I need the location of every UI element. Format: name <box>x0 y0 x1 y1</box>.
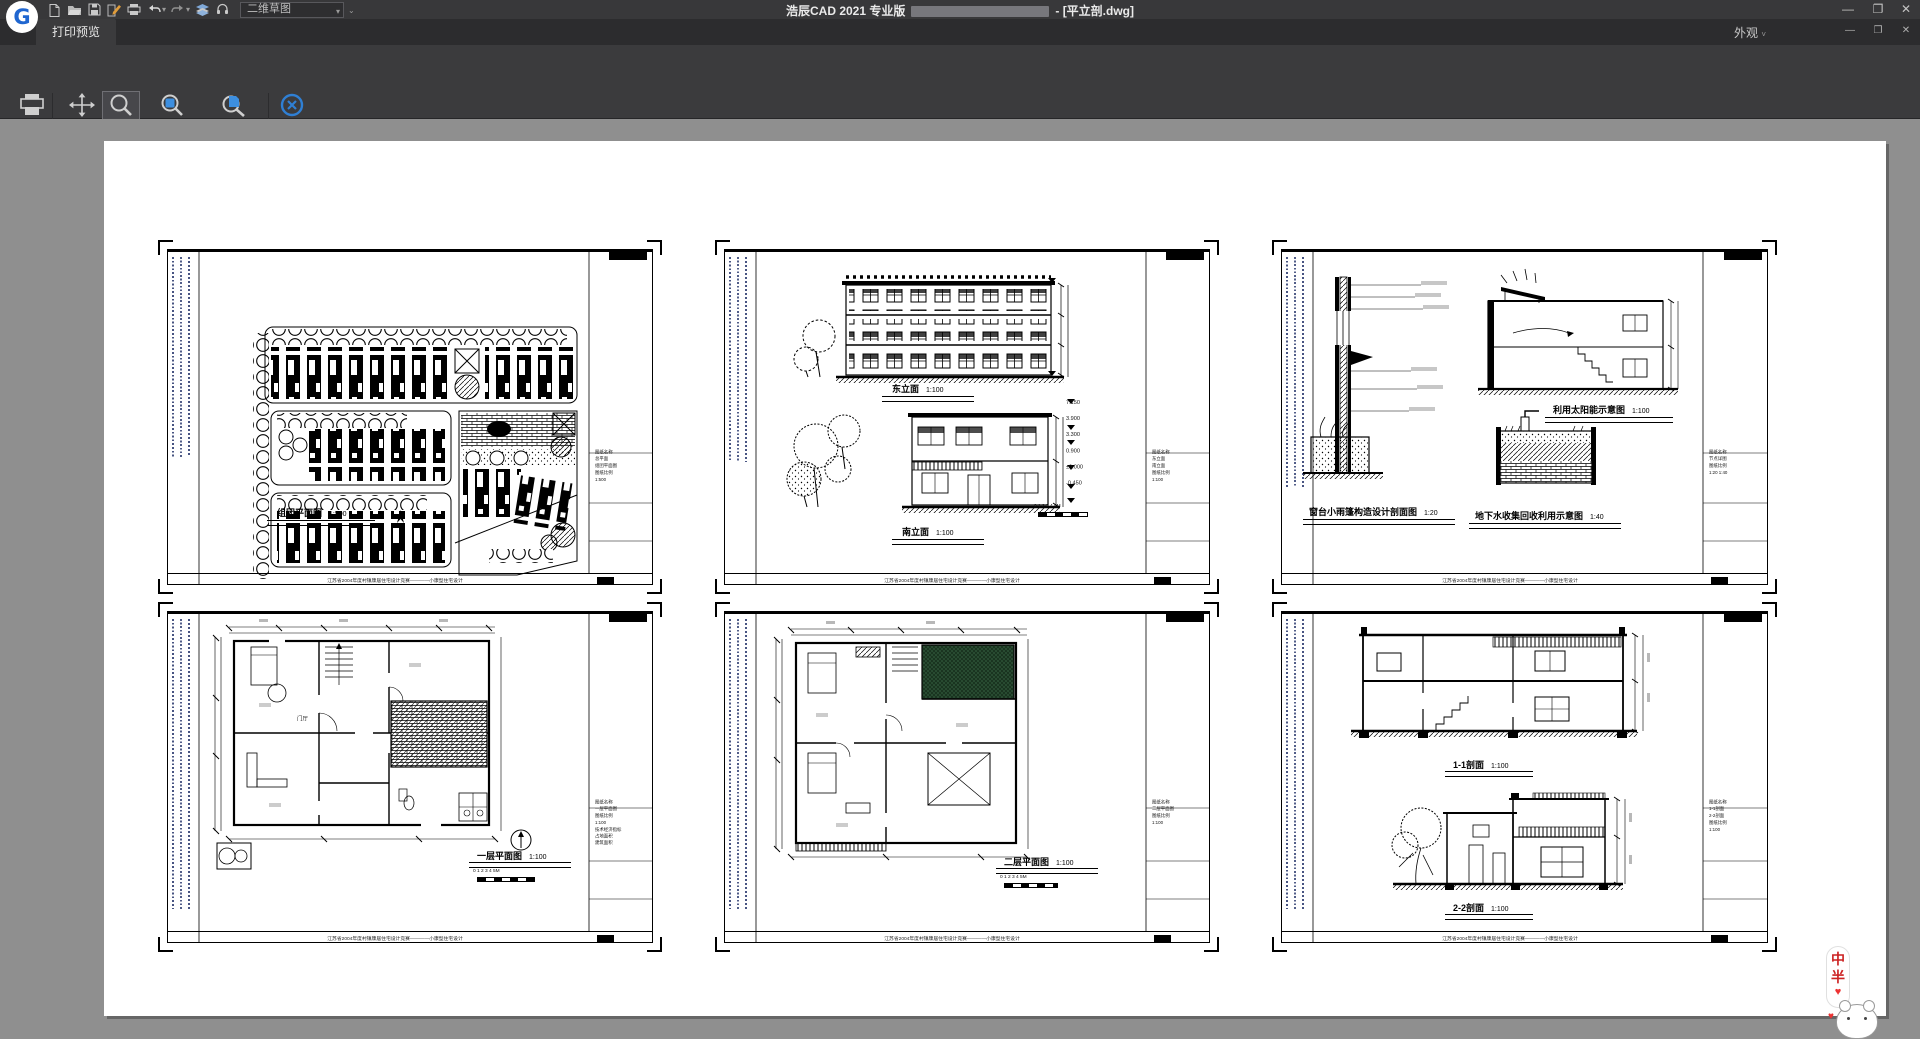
sheet-sections: 1-1剖面1:100 2-2剖面1:100 图纸名称 1-1剖面 2-2剖面 图… <box>1273 603 1776 951</box>
sheet-titleblock: 图纸名称 二层平面图 图纸比例 1:100 <box>1152 799 1207 826</box>
restore-button[interactable]: ❐ <box>1864 0 1892 18</box>
app-logo-icon[interactable]: G <box>6 1 38 33</box>
appearance-menu[interactable]: 外观 ˅ <box>1734 24 1766 41</box>
details-drawing <box>1273 241 1776 593</box>
sheet-footer: 江苏省2004年度村镇康居住宅设计竞赛————小康型住宅设计 <box>724 573 1210 593</box>
sheet-titleblock: 图纸名称 1-1剖面 2-2剖面 图纸比例 1:100 <box>1709 799 1764 833</box>
bear-icon: ♥ <box>1836 1004 1878 1039</box>
sheet-footer: 江苏省2004年度村镇康居住宅设计竞赛————小康型住宅设计 <box>167 931 653 951</box>
sheet-titleblock: 图纸名称 东立面 南立面 图纸比例 1:100 <box>1152 449 1207 483</box>
doc-close-button[interactable]: ✕ <box>1894 23 1918 41</box>
pan-icon <box>69 93 95 117</box>
sheet-details: 利用太阳能示意图1:100 窗台小雨篷构造设计剖面图1:20 地下水收集回收利用… <box>1273 241 1776 593</box>
sheet-footer: 江苏省2004年度村镇康居住宅设计竞赛————小康型住宅设计 <box>724 931 1210 951</box>
scalebar <box>477 877 535 882</box>
printer-icon <box>19 93 45 117</box>
sheet-titleblock: 图纸名称 一层平面图 图纸比例 1:100 技术经济指标 占地面积 建筑面积 <box>595 799 650 847</box>
caption-solar-diagram: 利用太阳能示意图1:100 <box>1553 403 1650 416</box>
titlebar: G ▾ ▾ 二维草图▾ ⌄ 浩辰CAD 2021 专业版- [平立剖.dwg] … <box>0 0 1920 19</box>
footer-stamp <box>1711 935 1728 943</box>
tab-print-preview[interactable]: 打印预览 <box>36 19 116 45</box>
window-zoom-icon <box>159 93 185 117</box>
caption-underline <box>1445 914 1533 920</box>
room-label: 门厅 <box>297 715 308 722</box>
doc-restore-button[interactable]: ❐ <box>1866 23 1890 41</box>
window-title: 浩辰CAD 2021 专业版- [平立剖.dwg] <box>0 2 1920 19</box>
cad-print-preview-window: { "titlebar": { "app_title": "浩辰CAD 2021… <box>0 0 1920 1037</box>
mascot-bubble: 中 半 ♥ <box>1826 946 1850 1008</box>
footer-stamp <box>1154 935 1171 943</box>
floor-plan-2-drawing <box>716 603 1218 951</box>
print-preview-ribbon: 打印 平移 缩放 窗口缩放 满屏缩放 关闭 打印 缩放 <box>0 45 1920 119</box>
chevron-down-icon: ˅ <box>1761 30 1766 39</box>
caption-underline <box>1303 519 1455 525</box>
caption-underline <box>267 520 375 526</box>
sheet-footer: 江苏省2004年度村镇康居住宅设计竞赛————小康型住宅设计 <box>1281 573 1768 593</box>
sections-drawing <box>1273 603 1776 951</box>
caption-groundwater-detail: 地下水收集回收利用示意图1:40 <box>1475 509 1604 522</box>
doc-minimize-button[interactable]: — <box>1838 23 1862 41</box>
footer-stamp <box>597 577 614 585</box>
sheet-site-plan: 组团平面图1:500 图纸名称 总平面 组团平面图 图纸比例 1:500 江苏省… <box>159 241 661 593</box>
scalebar <box>1038 512 1088 517</box>
zoom-icon <box>108 93 134 117</box>
site-plan-drawing <box>159 241 661 593</box>
footer-stamp <box>1154 577 1171 585</box>
scalebar-label: 0 1 2 3 4 5M <box>473 868 500 873</box>
scalebar <box>1004 883 1058 888</box>
scalebar-label: 0 1 2 3 4 5M <box>1034 503 1061 508</box>
sheet-footer: 江苏省2004年度村镇康居住宅设计竞赛————小康型住宅设计 <box>1281 931 1768 951</box>
caption-floor-plan-2: 二层平面图1:100 <box>1004 855 1074 868</box>
sheet-titleblock: 图纸名称 节点详图 图纸比例 1:20 1:40 <box>1709 449 1764 476</box>
caption-underline <box>996 868 1098 874</box>
sheet-floor-plan-2: 二层平面图1:100 0 1 2 3 4 5M 图纸名称 二层平面图 图纸比例 … <box>716 603 1218 951</box>
sheet-elevations: 东立面1:100 南立面1:100 7.150 3.900 3.300 0.90… <box>716 241 1218 593</box>
caption-underline <box>469 862 571 868</box>
sheet-footer: 江苏省2004年度村镇康居住宅设计竞赛————小康型住宅设计 <box>167 573 653 593</box>
caption-east-elevation: 东立面1:100 <box>892 382 944 395</box>
caption-underline <box>892 539 984 545</box>
caption-section-1-1: 1-1剖面1:100 <box>1453 758 1509 771</box>
scalebar-label: 0 1 2 3 4 5M <box>1000 874 1027 879</box>
fullscreen-zoom-icon <box>221 93 247 117</box>
minimize-button[interactable]: — <box>1834 0 1862 18</box>
caption-floor-plan-1: 一层平面图1:100 <box>477 849 547 862</box>
caption-underline <box>882 396 974 402</box>
caption-underline <box>1469 523 1621 529</box>
close-circle-icon <box>279 93 305 117</box>
caption-underline <box>1445 771 1533 777</box>
elevation-levels: 7.150 3.900 3.300 0.900 ±0.000 -0.450 <box>1066 394 1083 491</box>
redacted-text <box>911 6 1049 17</box>
caption-south-elevation: 南立面1:100 <box>902 525 954 538</box>
mascot-sticker: 中 半 ♥ ♥ <box>1824 946 1894 1037</box>
sheet-titleblock: 图纸名称 总平面 组团平面图 图纸比例 1:500 <box>595 449 650 483</box>
caption-sill-canopy-detail: 窗台小雨篷构造设计剖面图1:20 <box>1309 505 1438 518</box>
caption-underline <box>1545 417 1673 423</box>
caption-site-plan: 组团平面图1:500 <box>277 506 347 519</box>
floor-plan-1-drawing <box>159 603 661 951</box>
sheet-floor-plan-1: 门厅 一层平面图1:100 0 1 2 3 4 5M 图纸名称 一层平面图 图纸… <box>159 603 661 951</box>
close-button[interactable]: ✕ <box>1892 0 1920 18</box>
caption-section-2-2: 2-2剖面1:100 <box>1453 901 1509 914</box>
ribbon-tab-row <box>0 19 1920 45</box>
footer-stamp <box>597 935 614 943</box>
footer-stamp <box>1711 577 1728 585</box>
